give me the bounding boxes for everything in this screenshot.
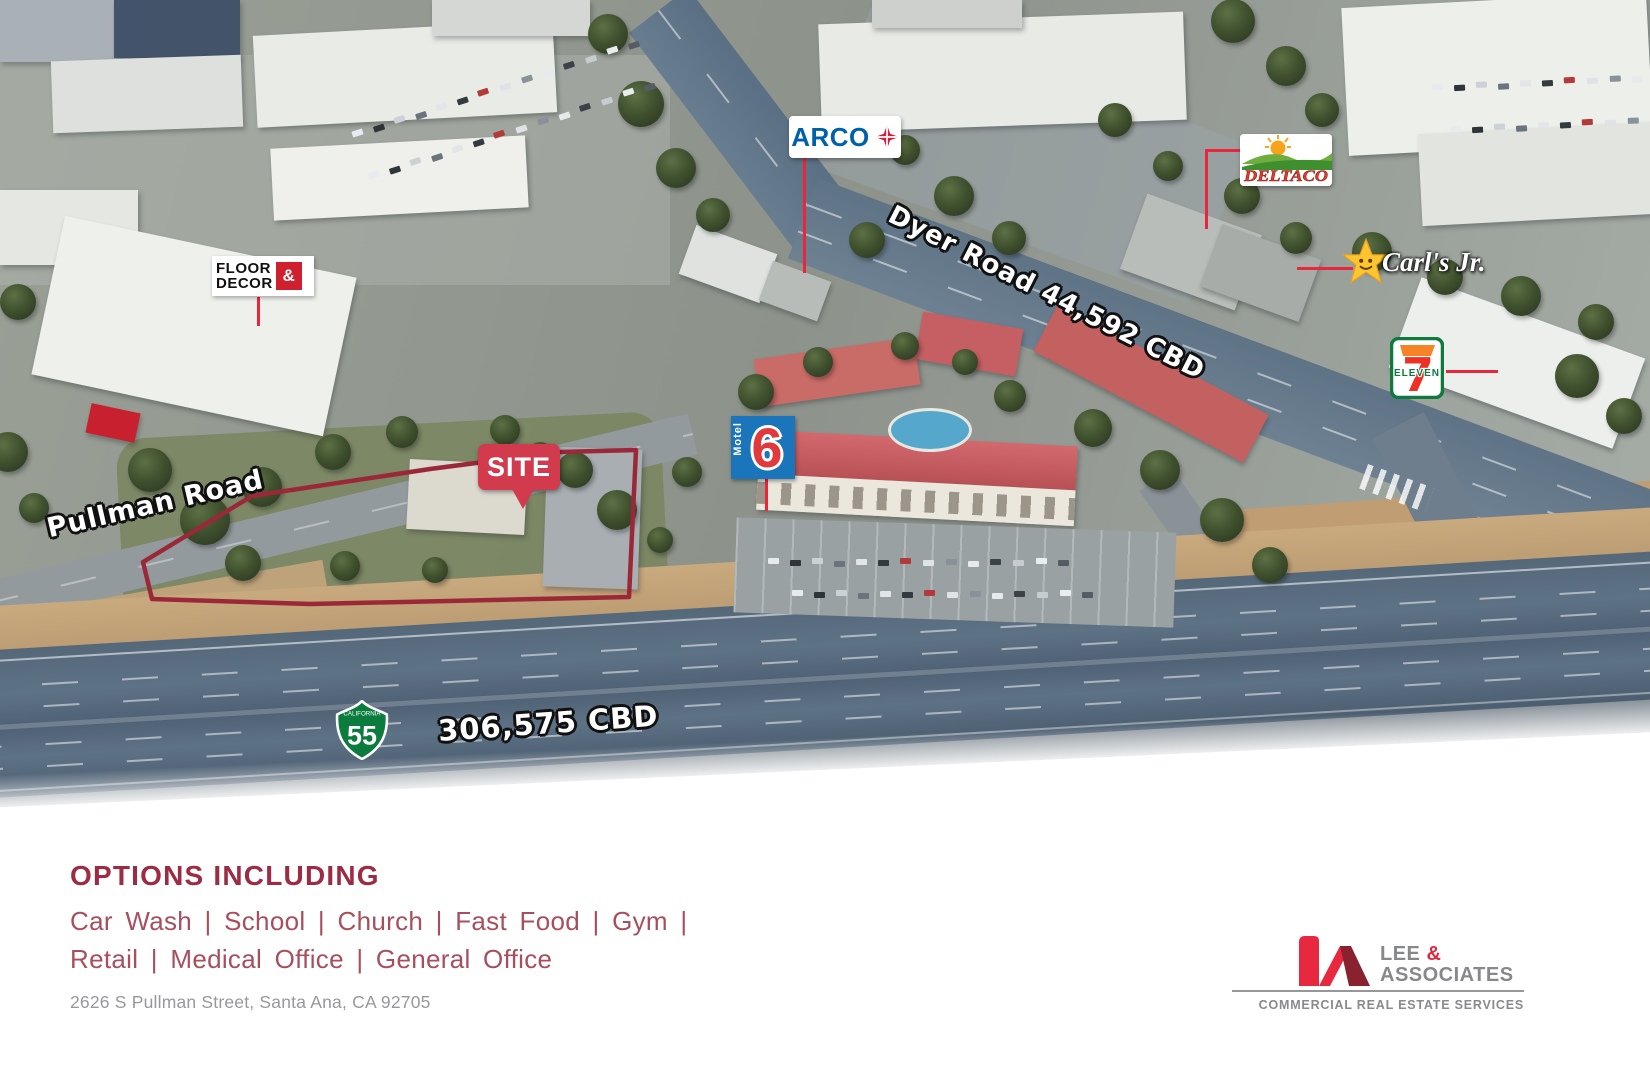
deltaco-logo: DELTACO (1240, 134, 1332, 186)
floordecor-ampersand: & (276, 262, 302, 290)
motel6-numeral: 6 (751, 420, 782, 476)
seveneleven-leader-line (1446, 370, 1498, 373)
floordecor-word2: DECOR (216, 276, 273, 291)
arco-leader-line (803, 158, 806, 273)
motel6-leader-line (765, 479, 768, 511)
seveneleven-logo: 7 ELEVEN (1390, 337, 1444, 399)
floordecor-leader-line (257, 297, 260, 326)
motel6-logo: Motel 6 (731, 416, 795, 479)
svg-text:CALIFORNIA: CALIFORNIA (343, 711, 381, 718)
arco-spark-icon (875, 125, 899, 149)
carlsjr-logo-text: Carl's Jr. (1382, 247, 1486, 278)
deltaco-leader-line-h (1205, 149, 1245, 152)
site-callout: SITE (478, 444, 560, 490)
flyer-page: Dyer Road 44,592 CBD Pullman Road 306,57… (0, 0, 1650, 1079)
arco-logo: ARCO (789, 116, 901, 158)
motel6-word: Motel (732, 422, 744, 456)
svg-text:DELTACO: DELTACO (1243, 168, 1329, 185)
floordecor-logo: FLOOR DECOR & (212, 256, 314, 296)
arco-logo-text: ARCO (791, 122, 870, 153)
ca-55-highway-shield: CALIFORNIA 55 (334, 700, 390, 760)
carlsjr-logo: Carl's Jr. (1342, 238, 1486, 286)
svg-text:55: 55 (347, 720, 377, 750)
svg-text:ELEVEN: ELEVEN (1394, 368, 1440, 379)
deltaco-leader-line-v (1205, 149, 1208, 229)
floordecor-word1: FLOOR (216, 261, 273, 276)
